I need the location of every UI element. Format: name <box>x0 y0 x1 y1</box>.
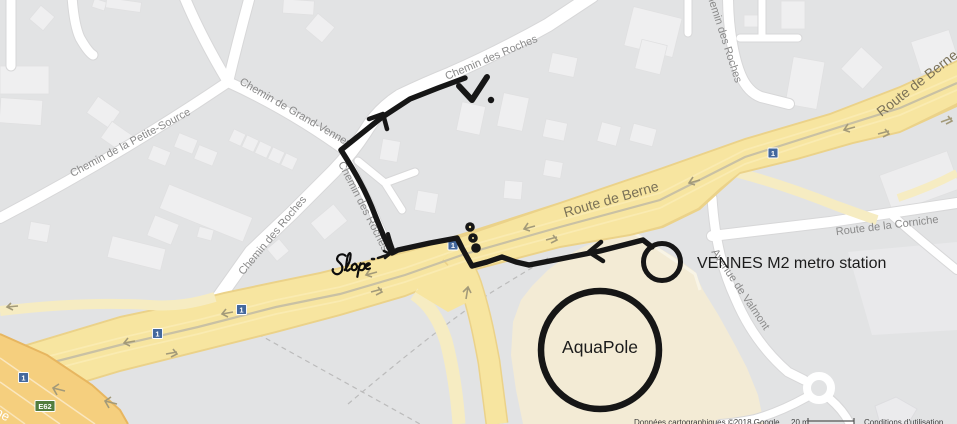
svg-text:AquaPole: AquaPole <box>562 337 638 357</box>
svg-text:1: 1 <box>21 374 25 383</box>
svg-text:Données cartographiques ©2018: Données cartographiques ©2018 Google <box>634 418 780 424</box>
svg-text:20 m: 20 m <box>791 418 809 424</box>
svg-text:E62: E62 <box>38 402 51 411</box>
svg-text:1: 1 <box>239 306 243 315</box>
svg-text:1: 1 <box>771 149 775 158</box>
svg-text:Conditions d'utilisation: Conditions d'utilisation <box>864 418 943 424</box>
svg-text:1: 1 <box>155 330 159 339</box>
svg-text:1: 1 <box>451 241 455 250</box>
svg-text:VENNES M2 metro station: VENNES M2 metro station <box>697 255 886 272</box>
